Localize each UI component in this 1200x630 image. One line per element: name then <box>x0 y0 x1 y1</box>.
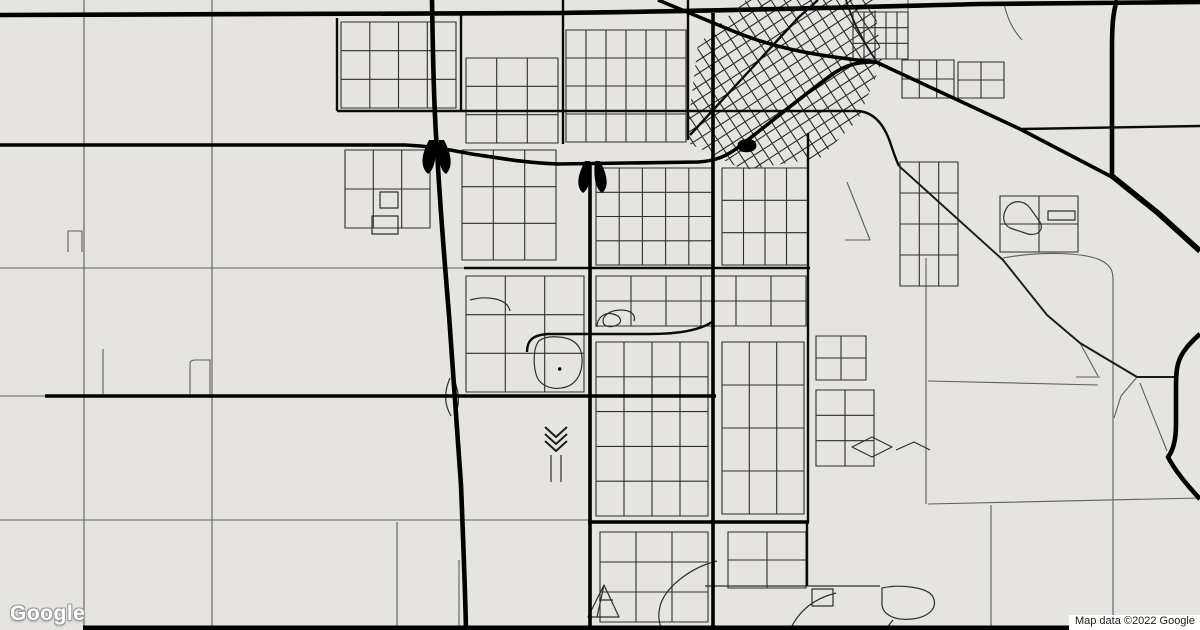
google-logo-watermark[interactable]: Google <box>10 603 85 624</box>
map-viewport[interactable]: Google Map data ©2022 Google <box>0 0 1200 630</box>
map-canvas[interactable] <box>0 0 1200 630</box>
map-attribution: Map data ©2022 Google <box>1069 615 1200 630</box>
